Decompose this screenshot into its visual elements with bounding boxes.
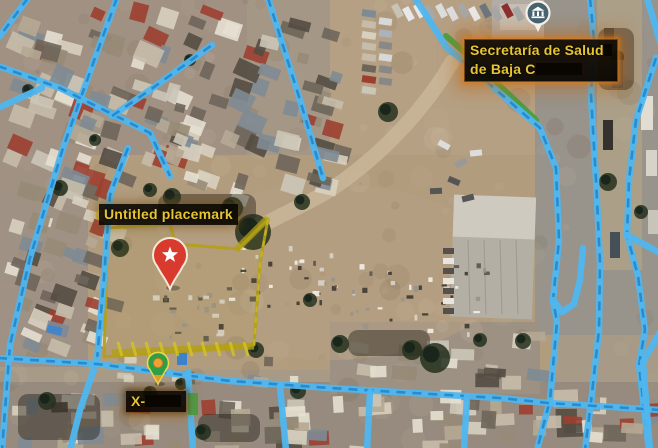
poi-label-line2: de Baja C [470, 61, 536, 77]
street-label[interactable]: X- [126, 391, 186, 412]
placemark-label[interactable]: Untitled placemark [99, 204, 238, 225]
star-pin[interactable] [146, 231, 194, 293]
street-label-text: X- [131, 393, 145, 409]
government-poi-pin[interactable] [522, 0, 554, 33]
redaction-block [536, 63, 582, 75]
map-viewport[interactable]: Untitled placemark Secretaría de Salud d… [0, 0, 658, 448]
poi-label-line1: Secretaría de Salud [470, 42, 604, 58]
placemark-label-text: Untitled placemark [104, 206, 233, 222]
poi-label[interactable]: Secretaría de Salud de Baja C [464, 39, 618, 82]
dot-icon [153, 358, 162, 367]
pin-body [153, 238, 187, 289]
redaction-block [145, 395, 181, 407]
dot-pin[interactable] [145, 351, 171, 388]
redaction-block [604, 44, 612, 56]
